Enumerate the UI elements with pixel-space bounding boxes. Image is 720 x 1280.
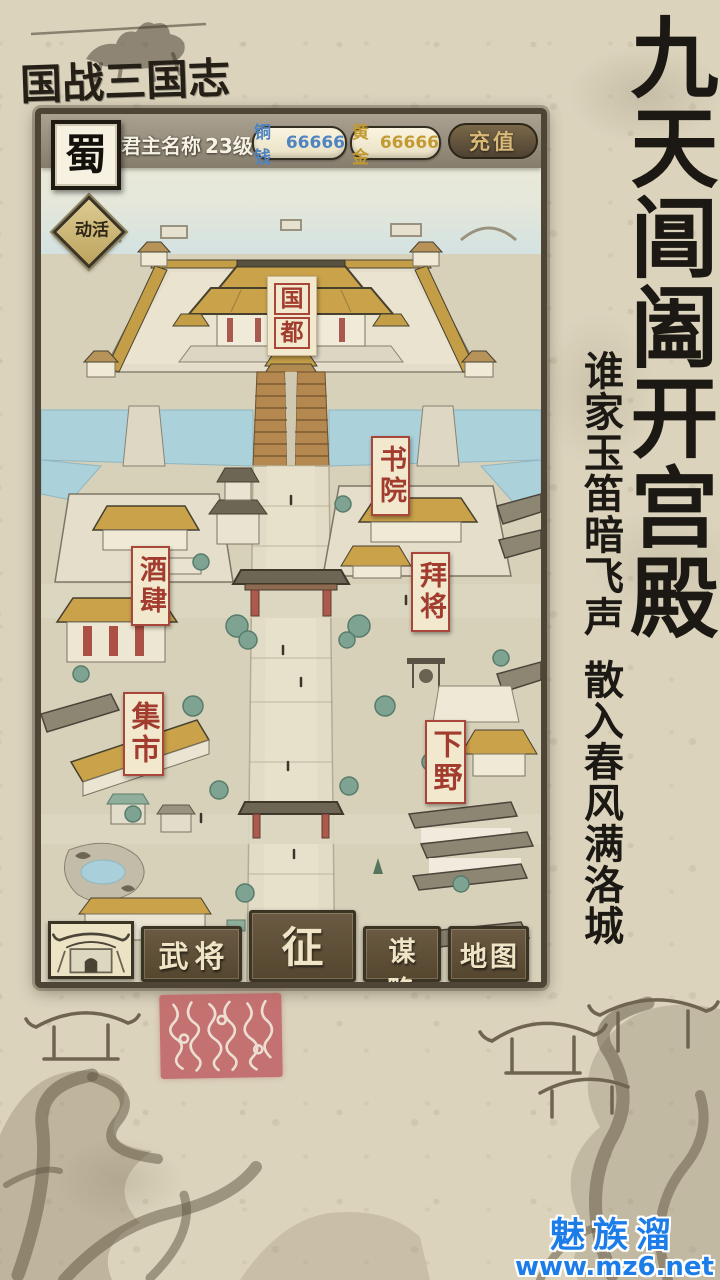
capital-char-2: 都 <box>274 317 310 349</box>
headline-calligraphy: 九天阊阖开宫殿 <box>624 12 712 642</box>
seal-script-pattern <box>159 993 282 1079</box>
red-seal-stamp <box>159 993 282 1079</box>
capital-char-1: 国 <box>274 283 310 315</box>
map-label-academy[interactable]: 书院 <box>371 436 410 516</box>
nav-map[interactable]: 地图 <box>448 926 529 982</box>
gold-value: 66666 <box>380 133 439 153</box>
map-label-market[interactable]: 集市 <box>123 692 164 776</box>
watermark-url: www.mz6.net <box>515 1254 714 1280</box>
pavilion-sketches <box>26 1000 718 1117</box>
lord-level: 23级 <box>205 130 253 159</box>
gold-currency-pill[interactable]: 黄金 66666 <box>350 126 441 160</box>
city-map-illustration <box>41 114 541 982</box>
nav-strategy[interactable]: 谋略 <box>363 926 441 982</box>
watermark-name: 魅族溜 <box>515 1219 714 1254</box>
game-screenshot-frame: 君主名称 23级 铜钱 66666 黄金 66666 充值 蜀 活动 国 都 书… <box>35 108 547 988</box>
faction-seal-char: 蜀 <box>65 134 107 176</box>
poem-column: 谁家玉笛暗飞声 散入春风满洛城 <box>579 350 620 946</box>
faction-seal-shu[interactable]: 蜀 <box>51 120 121 190</box>
city-gate-icon <box>51 924 131 976</box>
copper-label: 铜钱 <box>254 118 281 168</box>
game-logo: 国战三国志 <box>14 4 254 114</box>
poem-line-2: 散入春风满洛城 <box>579 659 620 946</box>
copper-currency-pill[interactable]: 铜钱 66666 <box>252 126 347 160</box>
poem-line-1: 谁家玉笛暗飞声 <box>579 350 620 637</box>
nav-generals[interactable]: 武将 <box>141 926 242 982</box>
nav-campaign[interactable]: 征战 <box>249 910 356 982</box>
copper-value: 66666 <box>286 133 345 153</box>
game-logo-text: 国战三国志 <box>19 44 231 112</box>
gold-label: 黄金 <box>352 118 375 168</box>
map-label-resign[interactable]: 下野 <box>425 720 466 804</box>
recharge-button[interactable]: 充值 <box>448 123 538 159</box>
watermark: 魅族溜 www.mz6.net <box>515 1219 714 1280</box>
map-label-tavern[interactable]: 酒肆 <box>131 546 170 626</box>
map-label-capital[interactable]: 国 都 <box>267 276 317 356</box>
lord-name: 君主名称 <box>121 130 201 159</box>
map-label-appoint-general[interactable]: 拜将 <box>411 552 450 632</box>
event-badge-label: 活动 <box>72 221 106 244</box>
promo-page: 国战三国志 九天阊阖开宫殿 谁家玉笛暗飞声 散入春风满洛城 <box>0 0 720 1280</box>
city-gate-button[interactable] <box>48 921 134 979</box>
